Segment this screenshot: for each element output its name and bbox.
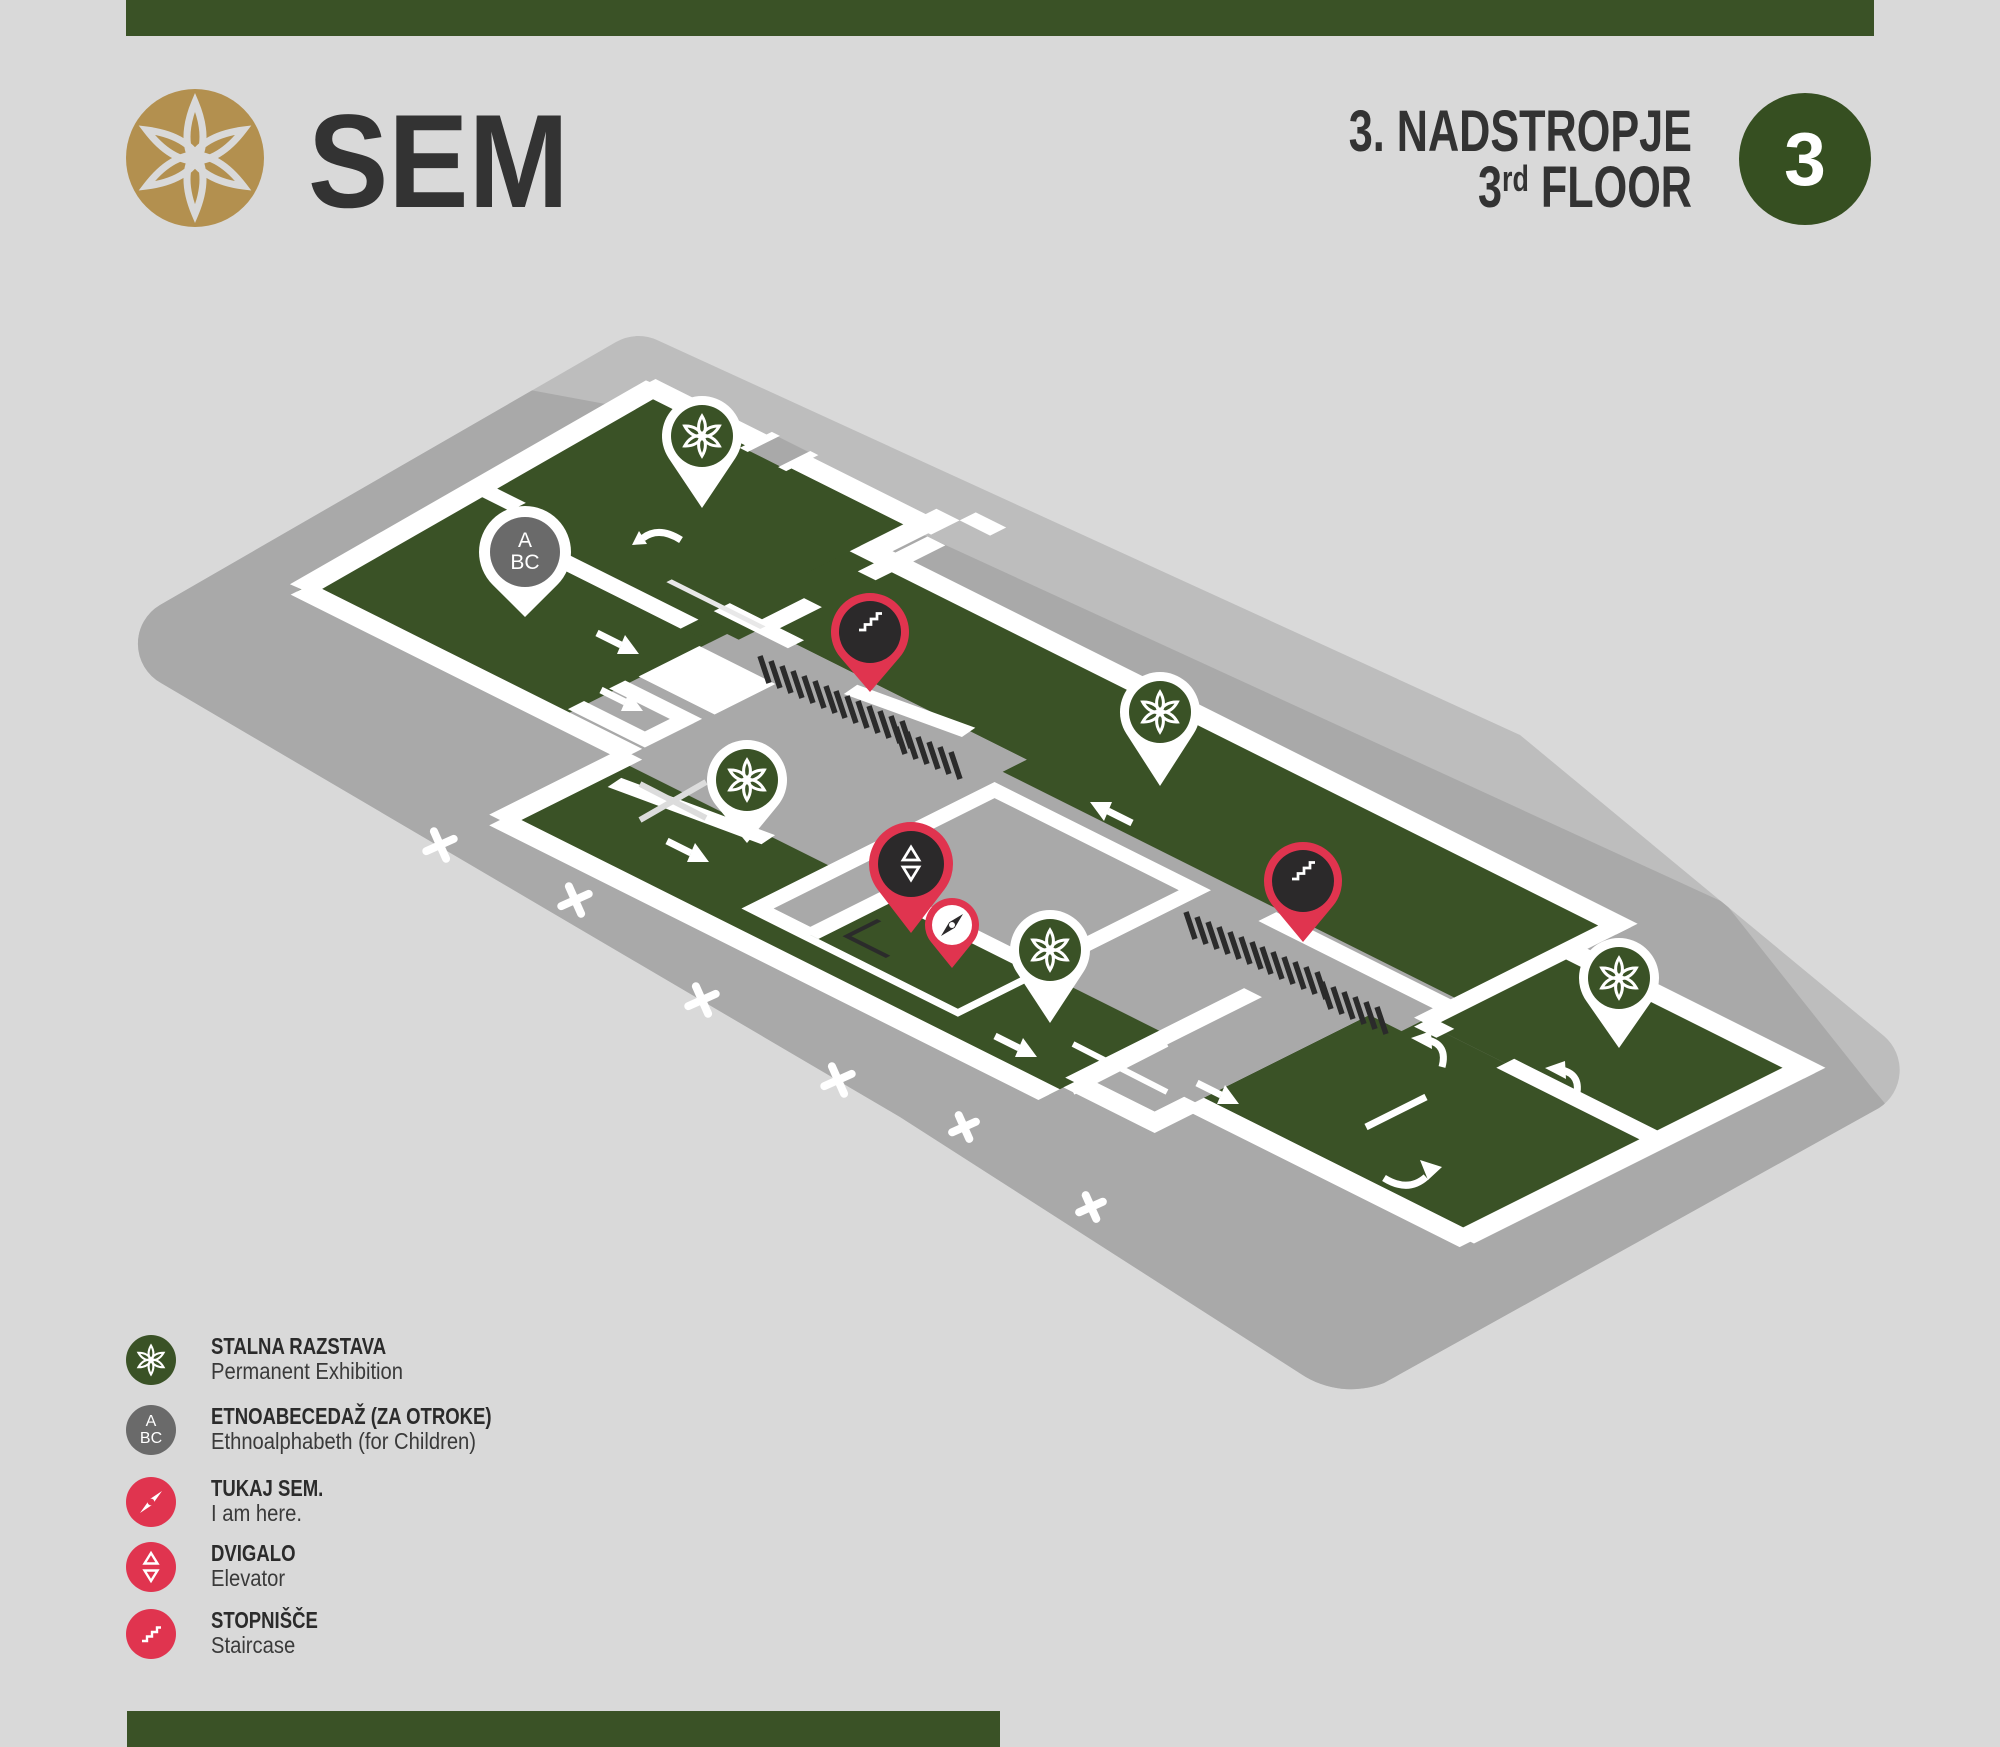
svg-text:BC: BC — [140, 1430, 162, 1447]
svg-text:STALNA RAZSTAVA: STALNA RAZSTAVA — [211, 1334, 386, 1360]
svg-text:Permanent Exhibition: Permanent Exhibition — [211, 1358, 403, 1385]
svg-text:3: 3 — [1784, 117, 1826, 201]
svg-text:SEM: SEM — [308, 86, 569, 235]
svg-text:Staircase: Staircase — [211, 1632, 295, 1659]
svg-text:Elevator: Elevator — [211, 1565, 285, 1592]
svg-text:I am here.: I am here. — [211, 1500, 302, 1527]
svg-text:A: A — [518, 529, 532, 552]
svg-text:TUKAJ SEM.: TUKAJ SEM. — [211, 1476, 323, 1502]
svg-text:STOPNIŠČE: STOPNIŠČE — [211, 1606, 318, 1634]
svg-text:Ethnoalphabeth (for Children): Ethnoalphabeth (for Children) — [211, 1428, 476, 1455]
svg-text:3. NADSTROPJE: 3. NADSTROPJE — [1349, 99, 1692, 164]
svg-text:DVIGALO: DVIGALO — [211, 1541, 296, 1567]
svg-text:A: A — [146, 1413, 157, 1430]
svg-text:BC: BC — [510, 551, 539, 574]
svg-text:ETNOABECEDAŽ (ZA OTROKE): ETNOABECEDAŽ (ZA OTROKE) — [211, 1402, 492, 1430]
